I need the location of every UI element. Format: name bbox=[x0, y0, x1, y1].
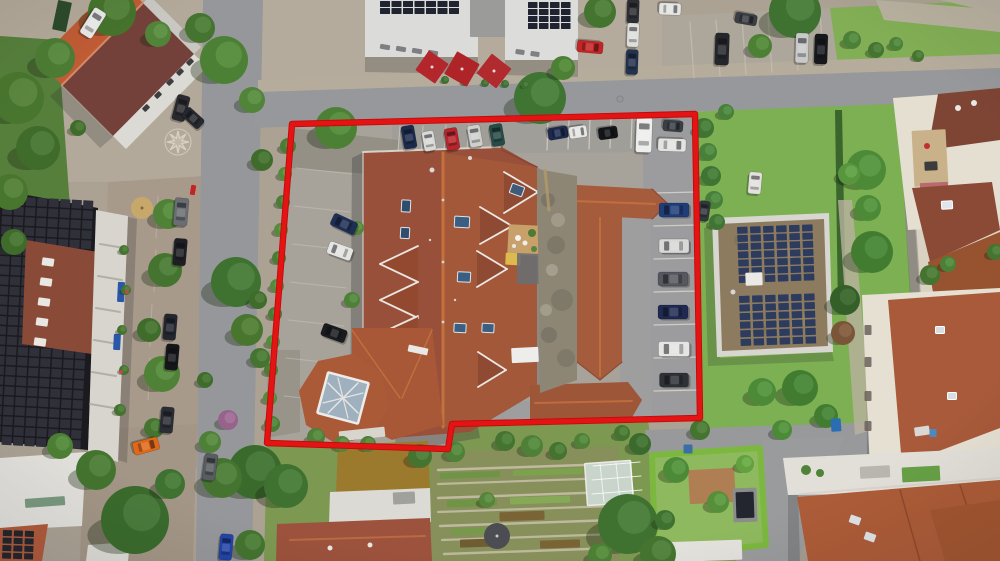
aerial-photo-canvas bbox=[0, 0, 1000, 561]
vignette-overlay bbox=[0, 0, 1000, 561]
screenshot-root bbox=[0, 0, 1000, 561]
